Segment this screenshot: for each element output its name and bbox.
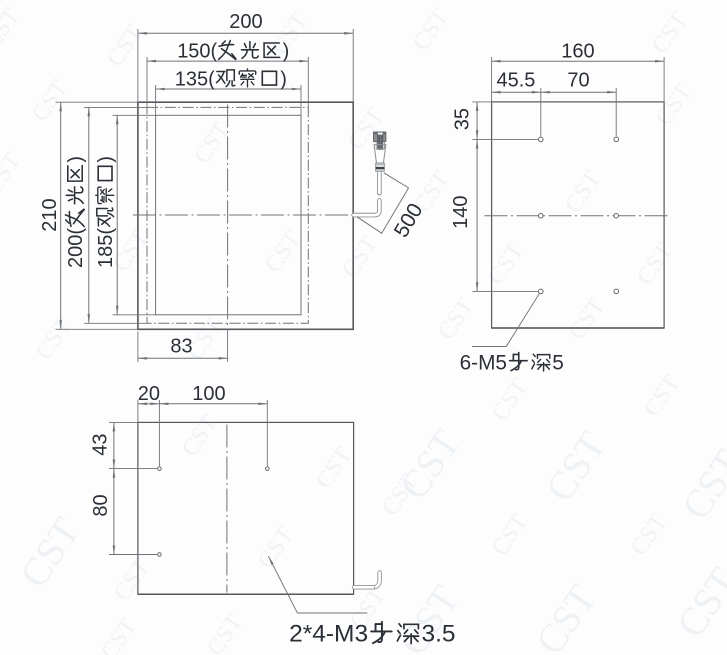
- svg-text:185(: 185(: [95, 228, 117, 268]
- svg-text:): ): [65, 156, 87, 163]
- svg-text:150(: 150(: [177, 40, 217, 62]
- svg-text:200(: 200(: [65, 228, 87, 268]
- svg-text:20: 20: [138, 383, 160, 405]
- svg-text:): ): [283, 40, 290, 62]
- svg-text:43: 43: [90, 433, 112, 455]
- svg-text:100: 100: [192, 383, 225, 405]
- svg-text:45.5: 45.5: [497, 70, 536, 92]
- svg-text:135(: 135(: [175, 68, 215, 90]
- svg-text:70: 70: [567, 70, 589, 92]
- svg-text:35: 35: [452, 108, 474, 130]
- svg-text:200: 200: [229, 11, 262, 33]
- svg-text:3.5: 3.5: [422, 621, 456, 648]
- svg-text:160: 160: [561, 41, 594, 63]
- svg-text:6-M5: 6-M5: [460, 351, 507, 374]
- svg-text:): ): [95, 156, 117, 163]
- svg-text:2*4-M3: 2*4-M3: [289, 621, 368, 648]
- svg-text:80: 80: [90, 494, 112, 516]
- svg-text:5: 5: [552, 351, 564, 374]
- svg-text:83: 83: [170, 336, 192, 358]
- svg-text:210: 210: [39, 198, 61, 231]
- svg-text:): ): [280, 68, 287, 90]
- svg-text:140: 140: [450, 196, 472, 229]
